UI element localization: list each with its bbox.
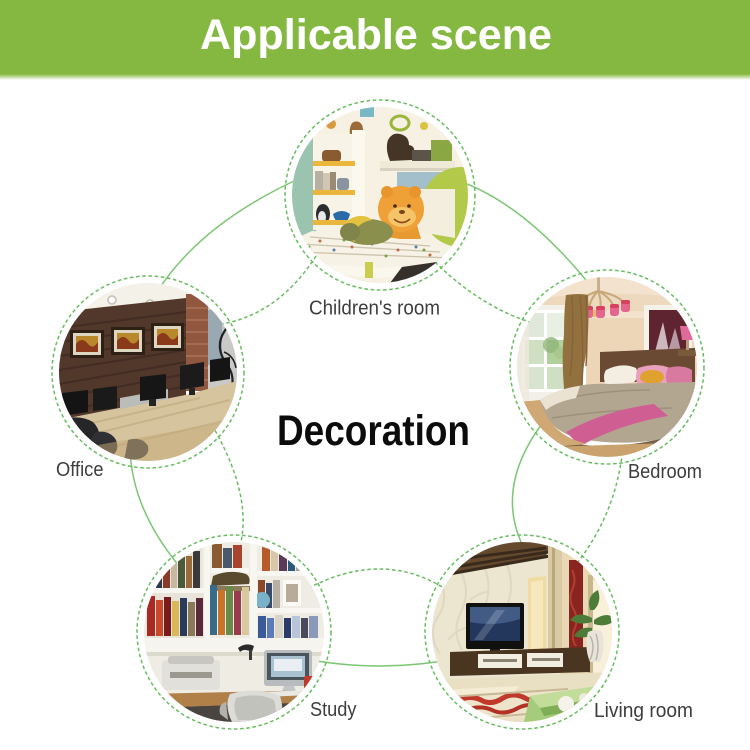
svg-text:Living room: Living room (594, 700, 693, 722)
svg-text:Study: Study (310, 699, 357, 721)
svg-text:Decoration: Decoration (277, 407, 470, 455)
svg-text:Children's room: Children's room (309, 298, 440, 320)
svg-text:Bedroom: Bedroom (628, 461, 702, 483)
svg-text:Office: Office (56, 459, 104, 481)
svg-text:Applicable scene: Applicable scene (200, 11, 552, 59)
